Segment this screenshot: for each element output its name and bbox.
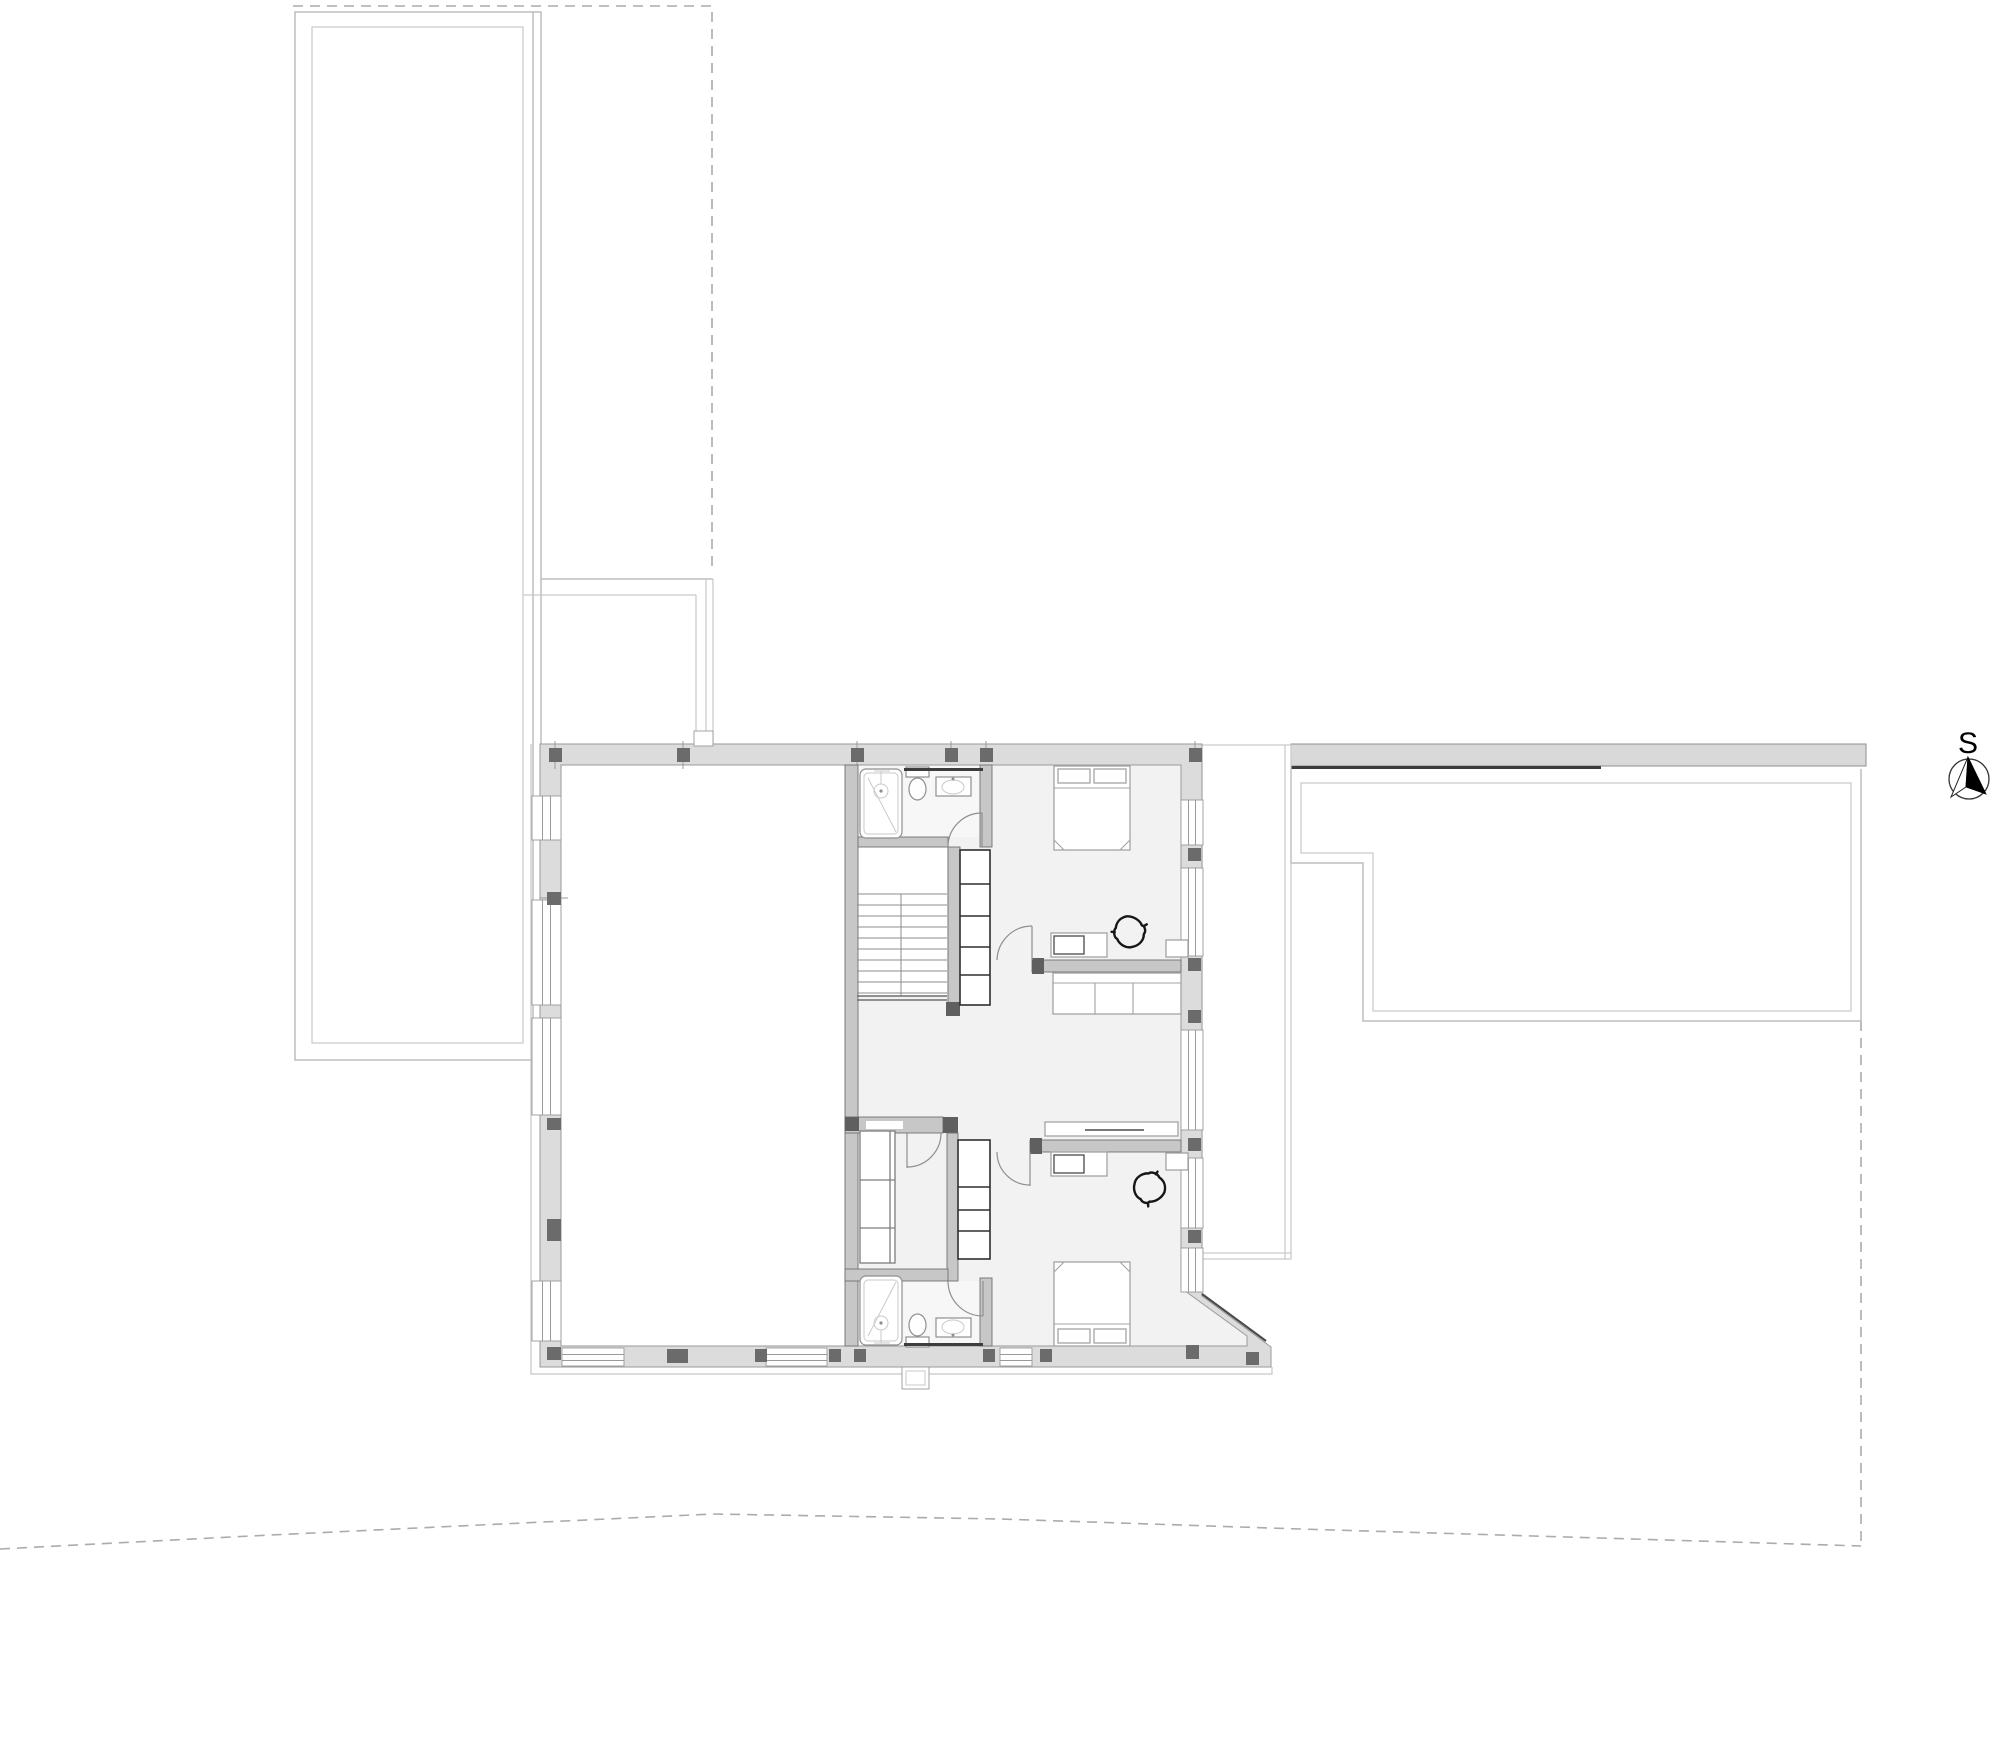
column xyxy=(1040,1349,1052,1362)
roof-west-inner-edge xyxy=(312,27,523,1043)
bathroom-north-wall-line xyxy=(904,768,983,771)
column xyxy=(1188,848,1201,861)
terrace-east xyxy=(1202,745,1291,1259)
column xyxy=(1186,1345,1199,1359)
compass-label: S xyxy=(1958,727,1978,760)
column xyxy=(547,1219,561,1241)
wall-cap xyxy=(946,1002,960,1016)
terrain-line-south xyxy=(0,1514,1861,1549)
window-west-4 xyxy=(532,1281,561,1341)
console-shelf xyxy=(1045,1122,1178,1136)
column xyxy=(1246,1352,1259,1365)
column xyxy=(980,748,993,762)
stair-closet-wall xyxy=(948,847,960,1005)
column xyxy=(677,748,690,762)
roof-east-band xyxy=(1291,744,1866,766)
column xyxy=(547,1118,561,1130)
window-east-5 xyxy=(1181,1248,1203,1292)
bathroom-south-wall-line xyxy=(904,1343,983,1346)
column xyxy=(983,1349,995,1362)
column xyxy=(1188,1230,1201,1243)
bedroom-north-south-wall xyxy=(1032,960,1181,972)
flat-roof-east xyxy=(1291,744,1866,1021)
stairwell-void xyxy=(858,847,947,995)
spine-wall xyxy=(845,765,858,1346)
roof-east-dark-edge xyxy=(1291,766,1601,769)
window-south-2 xyxy=(766,1348,827,1366)
column xyxy=(1188,1138,1201,1151)
terrace-outline xyxy=(1202,745,1291,1259)
wall-cap xyxy=(1032,958,1044,974)
compass: S xyxy=(1949,727,1989,799)
bedroom-south-north-wall xyxy=(1030,1140,1181,1152)
sofa xyxy=(1053,973,1181,1014)
closet-room-north-wall-inset xyxy=(866,1121,903,1129)
column xyxy=(851,748,864,762)
closet-room-east-wall xyxy=(947,1133,958,1281)
column xyxy=(1189,748,1202,762)
column xyxy=(547,1347,561,1360)
column xyxy=(667,1349,688,1363)
wardrobe xyxy=(860,1131,895,1263)
roof-east-outer-edge xyxy=(1291,769,1861,1021)
shower xyxy=(860,1276,902,1345)
shower xyxy=(860,769,902,838)
property-line-northwest xyxy=(293,6,712,573)
wall-cap xyxy=(845,1117,859,1131)
compass-needle-left xyxy=(1951,757,1968,797)
window-west-1 xyxy=(532,796,561,840)
column xyxy=(755,1349,767,1362)
window-east-3 xyxy=(1181,1030,1203,1130)
garden-wall-link xyxy=(696,579,713,744)
compass-needle-right xyxy=(1966,757,1986,794)
void-over-lower-level xyxy=(561,765,845,1346)
roof-west-outer-edge xyxy=(295,12,541,1060)
window-south-1 xyxy=(562,1348,624,1366)
bathroom-south-east-wall xyxy=(980,1278,992,1346)
column xyxy=(547,892,561,905)
column xyxy=(1188,1010,1201,1023)
column xyxy=(1188,958,1201,971)
roof-east-inner-edge xyxy=(1301,783,1851,1011)
double-bed-south xyxy=(1054,1262,1130,1346)
column xyxy=(854,1349,866,1362)
floor-plan-drawing: S xyxy=(0,0,2000,1757)
shelf-unit-south xyxy=(958,1140,990,1259)
column xyxy=(829,1349,841,1362)
window-west-2 xyxy=(532,900,561,1005)
column xyxy=(945,748,958,762)
washbasin xyxy=(936,1318,971,1337)
washbasin xyxy=(936,777,971,796)
building-floors xyxy=(561,765,1247,1346)
wall-cap xyxy=(1030,1138,1042,1154)
column xyxy=(549,748,562,762)
window-west-3 xyxy=(532,1018,561,1115)
wall-cap xyxy=(943,1117,958,1133)
shelf-unit-north xyxy=(960,850,990,1005)
double-bed-north xyxy=(1054,766,1130,850)
chimney xyxy=(694,731,713,746)
window-south-3 xyxy=(1000,1348,1032,1366)
window-east-1 xyxy=(1181,800,1203,845)
